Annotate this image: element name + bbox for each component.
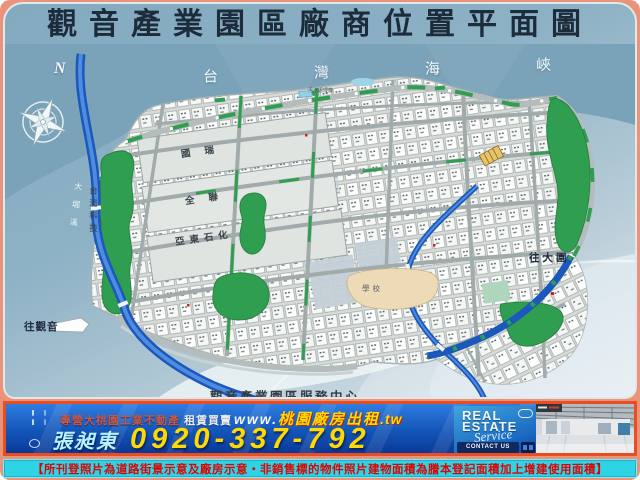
label-to-dayuan: 往大園 bbox=[529, 253, 570, 264]
flyer-page: 觀音產業園區廠商位置平面圖 N 台灣海峽 國瑞 全聯 亞東石化 台灣科技 大堀溪… bbox=[0, 0, 640, 480]
banner-ring-icon bbox=[29, 439, 40, 448]
disclaimer-strip: 【所刊登照片為道路街景示意及廠房示意‧非銷售標的物件照片建物面積為謄本登記面積加… bbox=[3, 459, 637, 478]
real-estate-badge: REAL ESTATE Service CONTACT US bbox=[454, 406, 538, 455]
label-to-guanyin: 往觀音 bbox=[24, 322, 59, 333]
agent-name: 張昶東 bbox=[52, 425, 118, 454]
disclaimer-text: 【所刊登照片為道路街景示意及廠房示意‧非銷售標的物件照片建物面積為謄本登記面積加… bbox=[32, 464, 608, 476]
label-sewage-plant: 汚水處理廠 bbox=[308, 89, 333, 94]
contact-row: 張昶東 0920-337-792 bbox=[52, 423, 371, 456]
page-title: 觀音產業園區廠商位置平面圖 bbox=[5, 10, 635, 40]
compass-north-label: N bbox=[54, 61, 66, 77]
cloud-icon bbox=[518, 409, 533, 418]
contact-us-button[interactable]: CONTACT US bbox=[457, 442, 519, 453]
ad-banner: 專營大桃園工業不動產 租賃買賣 www.桃園廠房出租.tw 張昶東 0920-3… bbox=[3, 401, 637, 456]
map-panel: 觀音產業園區廠商位置平面圖 N 台灣海峽 國瑞 全聯 亞東石化 台灣科技 大堀溪… bbox=[3, 2, 637, 399]
banner-logo-icon bbox=[32, 410, 46, 425]
website-tld: .tw bbox=[380, 411, 402, 427]
school-area bbox=[347, 269, 438, 310]
label-school: 學校 bbox=[362, 285, 383, 293]
label-taiwan-tech: 台灣科技 bbox=[89, 186, 98, 236]
chevron-arrows-icon bbox=[521, 442, 535, 453]
phone-number: 0920-337-792 bbox=[130, 423, 371, 456]
label-service-center: 觀音產業園區服務中心 bbox=[210, 391, 360, 399]
warehouse-photo bbox=[536, 404, 634, 453]
